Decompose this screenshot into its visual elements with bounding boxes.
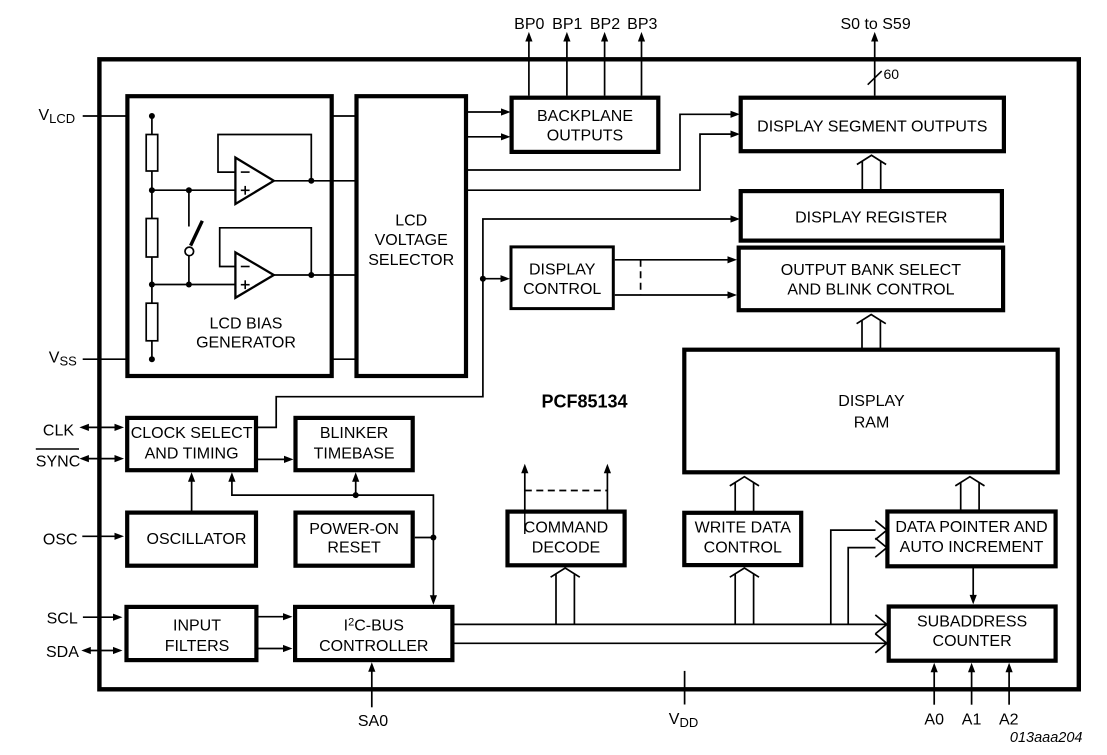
svg-text:INPUT: INPUT [173,618,221,635]
svg-text:FILTERS: FILTERS [165,638,230,655]
svg-text:TIMEBASE: TIMEBASE [314,446,395,463]
svg-text:DATA POINTER AND: DATA POINTER AND [895,519,1047,536]
svg-text:BP3: BP3 [627,16,657,33]
svg-text:CONTROLLER: CONTROLLER [319,638,428,655]
svg-text:LCD: LCD [395,213,427,230]
svg-text:LCD BIAS: LCD BIAS [210,316,283,333]
svg-text:SCL: SCL [47,610,78,627]
svg-text:OUTPUTS: OUTPUTS [547,128,623,145]
svg-text:DECODE: DECODE [532,539,600,556]
svg-text:DISPLAY: DISPLAY [529,261,596,278]
svg-text:COUNTER: COUNTER [933,633,1012,650]
svg-text:RAM: RAM [854,415,890,432]
svg-text:OSC: OSC [43,531,78,548]
svg-text:OSCILLATOR: OSCILLATOR [147,531,247,548]
svg-text:BP0: BP0 [514,16,544,33]
svg-text:VDD: VDD [669,711,698,730]
svg-text:VSS: VSS [49,349,77,368]
svg-text:COMMAND: COMMAND [524,520,608,537]
svg-text:SELECTOR: SELECTOR [368,252,454,269]
svg-text:CONTROL: CONTROL [523,281,601,298]
svg-text:60: 60 [884,66,900,82]
svg-text:AND BLINK CONTROL: AND BLINK CONTROL [787,282,954,299]
svg-text:WRITE DATA: WRITE DATA [695,520,792,537]
svg-text:A1: A1 [962,711,982,728]
svg-text:BLINKER: BLINKER [320,425,388,442]
svg-text:S0 to S59: S0 to S59 [840,16,910,33]
svg-text:DISPLAY REGISTER: DISPLAY REGISTER [795,210,947,227]
svg-text:BP2: BP2 [590,16,620,33]
svg-text:AND TIMING: AND TIMING [145,446,239,463]
svg-text:SUBADDRESS: SUBADDRESS [917,613,1027,630]
svg-text:BACKPLANE: BACKPLANE [537,108,633,125]
svg-text:BP1: BP1 [552,16,582,33]
svg-text:SYNC: SYNC [36,454,80,471]
svg-text:GENERATOR: GENERATOR [196,334,296,351]
svg-text:PCF85134: PCF85134 [541,391,627,411]
svg-text:POWER-ON: POWER-ON [309,521,399,538]
svg-text:SDA: SDA [46,644,79,661]
svg-text:AUTO INCREMENT: AUTO INCREMENT [900,539,1044,556]
svg-text:CLK: CLK [43,423,74,440]
svg-text:VOLTAGE: VOLTAGE [375,232,448,249]
svg-text:VLCD: VLCD [39,107,76,126]
svg-text:CONTROL: CONTROL [704,539,782,556]
svg-text:DISPLAY SEGMENT OUTPUTS: DISPLAY SEGMENT OUTPUTS [757,118,987,135]
svg-text:RESET: RESET [327,539,381,556]
svg-text:013aaa204: 013aaa204 [1010,730,1083,746]
svg-text:SA0: SA0 [358,713,388,730]
svg-text:OUTPUT BANK SELECT: OUTPUT BANK SELECT [781,262,961,279]
svg-text:A0: A0 [924,711,944,728]
svg-text:CLOCK SELECT: CLOCK SELECT [131,425,253,442]
svg-text:A2: A2 [999,711,1019,728]
svg-text:DISPLAY: DISPLAY [838,393,905,410]
